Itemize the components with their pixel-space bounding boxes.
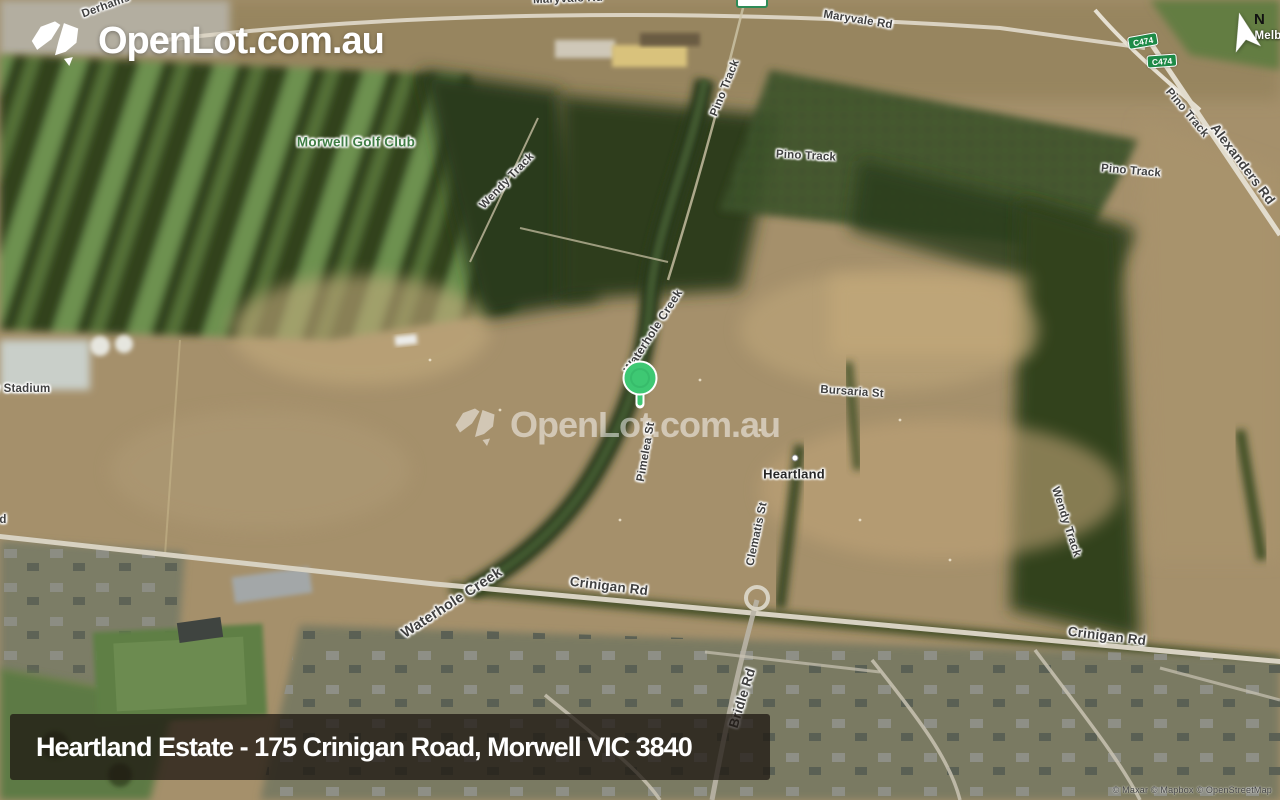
- map-label-stadium: y Stadium: [0, 383, 50, 395]
- map-label-morwell-golf-club: Morwell Golf Club: [297, 135, 415, 150]
- route-shield-c474-2: C474: [1146, 53, 1177, 68]
- estate-address-banner: Heartland Estate - 175 Crinigan Road, Mo…: [10, 714, 770, 780]
- estate-address-text: Heartland Estate - 175 Crinigan Road, Mo…: [36, 732, 692, 763]
- compass-north-indicator[interactable]: N: [1222, 6, 1274, 62]
- location-marker[interactable]: [616, 354, 664, 412]
- openlot-logo: OpenLot.com.au: [26, 16, 384, 66]
- map-attribution: © Maxar © Mapbox © OpenStreetMap: [1113, 785, 1272, 795]
- logo-text: OpenLot.com.au: [98, 20, 384, 63]
- map-canvas[interactable]: OpenLot.com.au Derhams Maryvale Rd Maryv…: [0, 0, 1280, 800]
- map-label-heartland: Heartland: [763, 467, 825, 482]
- openlot-australia-icon: [26, 16, 84, 66]
- compass-n-letter: N: [1254, 11, 1265, 28]
- map-label-rd-clipped: d: [0, 514, 7, 526]
